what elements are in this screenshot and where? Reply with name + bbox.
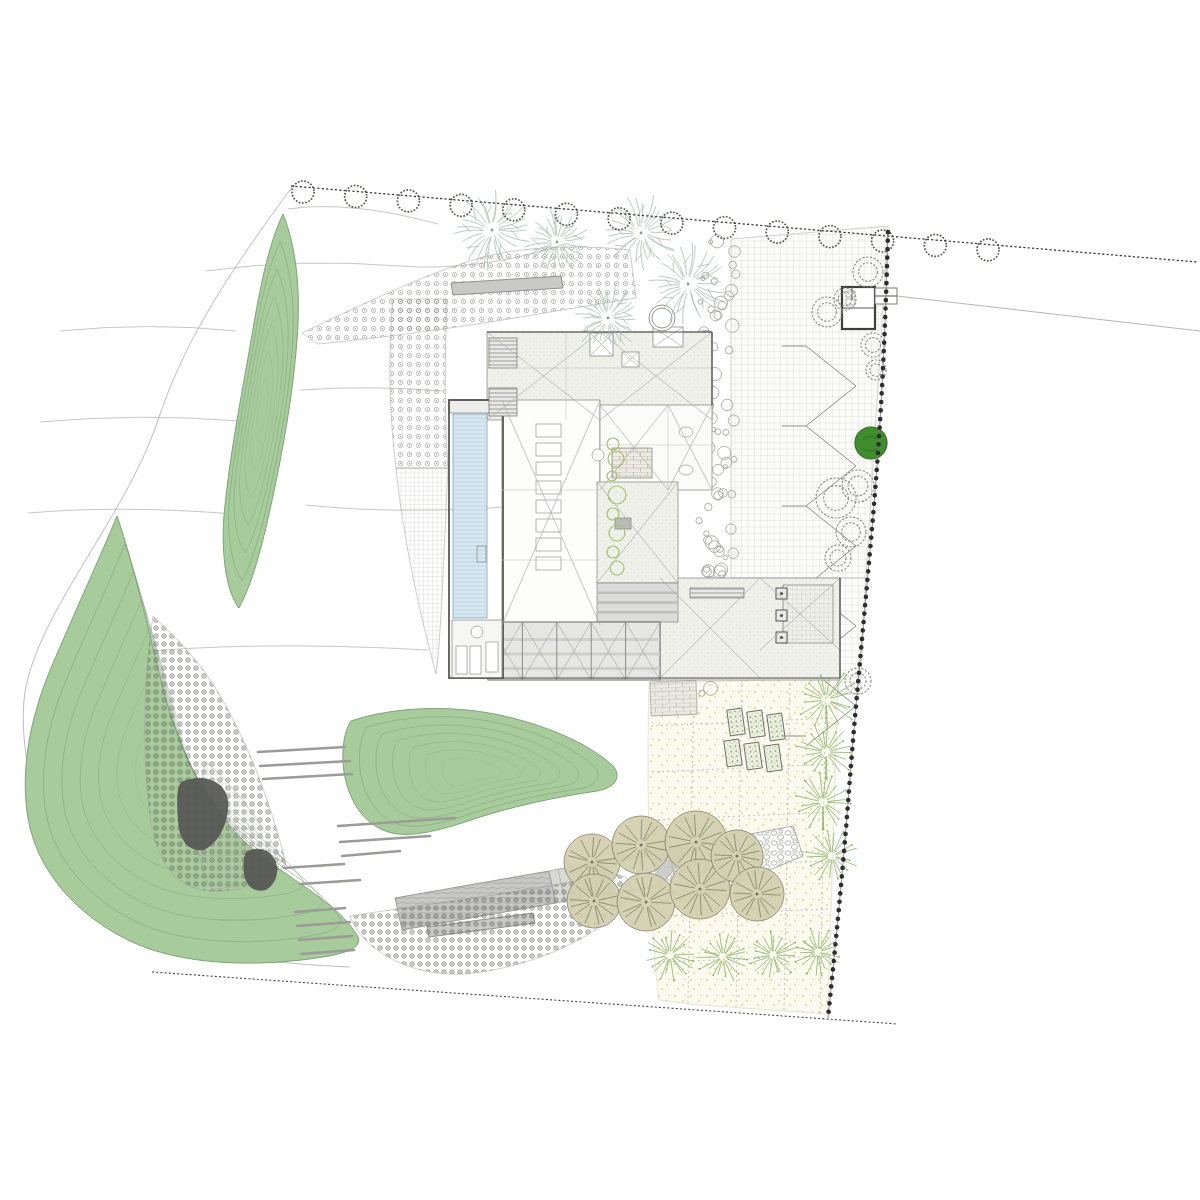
olive-tree (612, 816, 670, 874)
site-plan-canvas (0, 0, 1200, 1200)
olive-tree (730, 867, 784, 921)
olive-tree (617, 873, 675, 931)
olive-tree (567, 874, 621, 928)
garage-structure (842, 287, 1200, 331)
site-plan (0, 0, 1200, 1200)
dark-green-tree (855, 427, 887, 459)
